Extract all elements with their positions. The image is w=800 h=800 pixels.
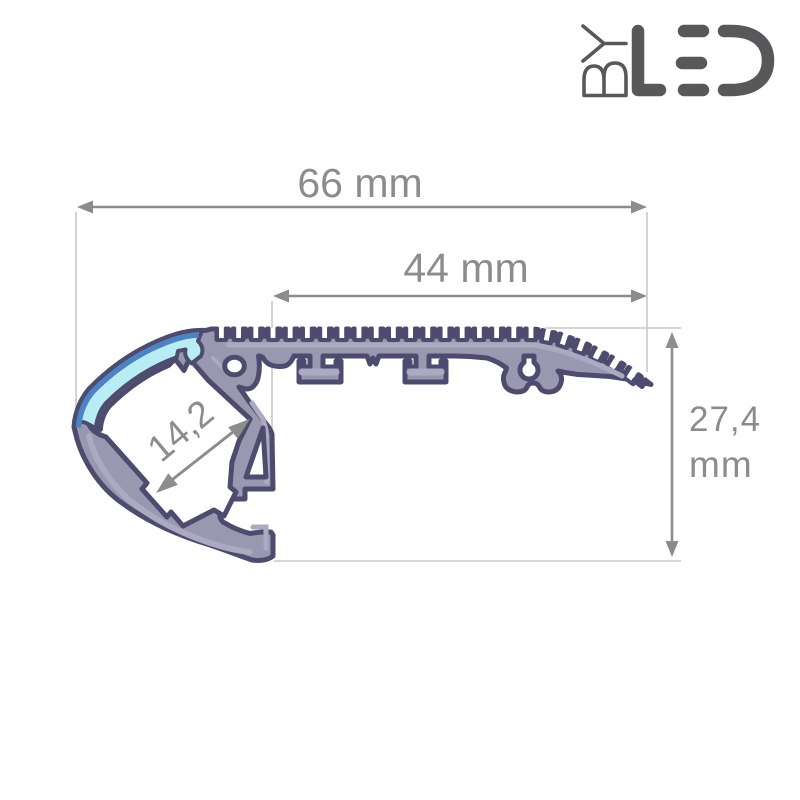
svg-text:27,4: 27,4 <box>689 400 761 439</box>
svg-text:44 mm: 44 mm <box>403 245 528 291</box>
svg-text:mm: mm <box>689 444 753 485</box>
svg-text:66 mm: 66 mm <box>297 160 422 206</box>
